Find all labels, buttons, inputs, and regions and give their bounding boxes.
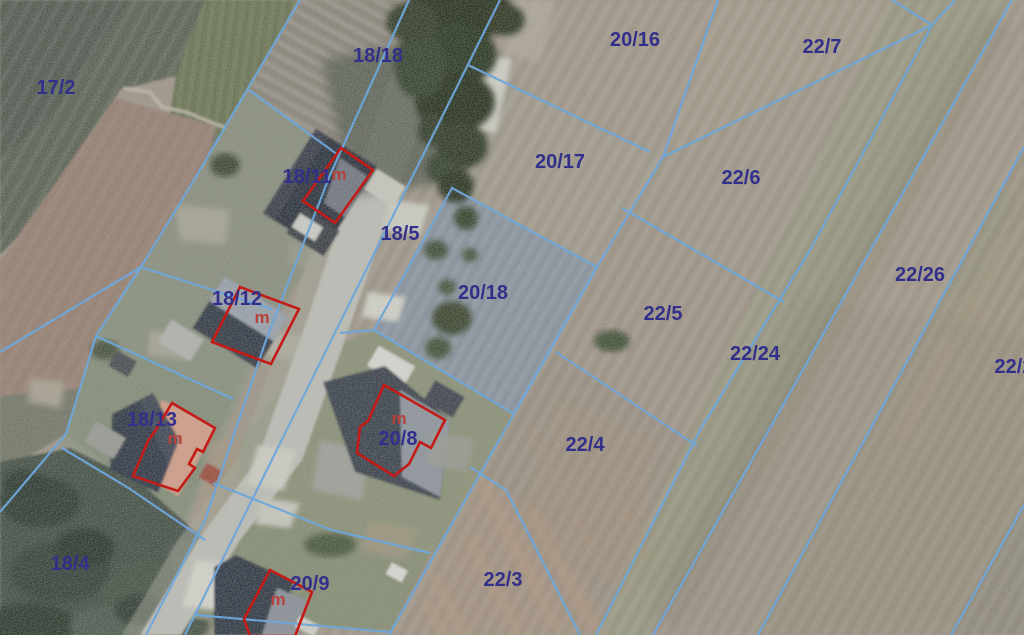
svg-text:m: m	[331, 165, 346, 184]
svg-text:22/2: 22/2	[995, 356, 1024, 378]
svg-text:18/5: 18/5	[381, 223, 420, 245]
svg-text:18/13: 18/13	[127, 409, 177, 431]
svg-text:20/17: 20/17	[535, 151, 585, 173]
svg-text:22/7: 22/7	[803, 36, 842, 58]
svg-text:18/12: 18/12	[212, 288, 262, 310]
svg-text:22/5: 22/5	[644, 303, 683, 325]
svg-text:22/24: 22/24	[730, 343, 781, 365]
svg-text:20/16: 20/16	[610, 29, 660, 51]
svg-text:20/18: 20/18	[458, 282, 508, 304]
svg-text:20/8: 20/8	[379, 428, 418, 450]
svg-text:20/9: 20/9	[291, 573, 330, 595]
svg-text:22/3: 22/3	[484, 569, 523, 591]
svg-text:22/6: 22/6	[722, 167, 761, 189]
svg-text:22/4: 22/4	[566, 434, 606, 456]
svg-text:18/4: 18/4	[51, 553, 91, 575]
svg-text:m: m	[254, 308, 269, 327]
svg-text:17/2: 17/2	[37, 77, 76, 99]
svg-text:m: m	[270, 590, 285, 609]
svg-text:18/18: 18/18	[353, 45, 403, 67]
svg-text:22/26: 22/26	[895, 264, 945, 286]
svg-text:m: m	[391, 409, 406, 428]
svg-text:18/11: 18/11	[283, 166, 332, 188]
svg-text:m: m	[167, 429, 182, 448]
